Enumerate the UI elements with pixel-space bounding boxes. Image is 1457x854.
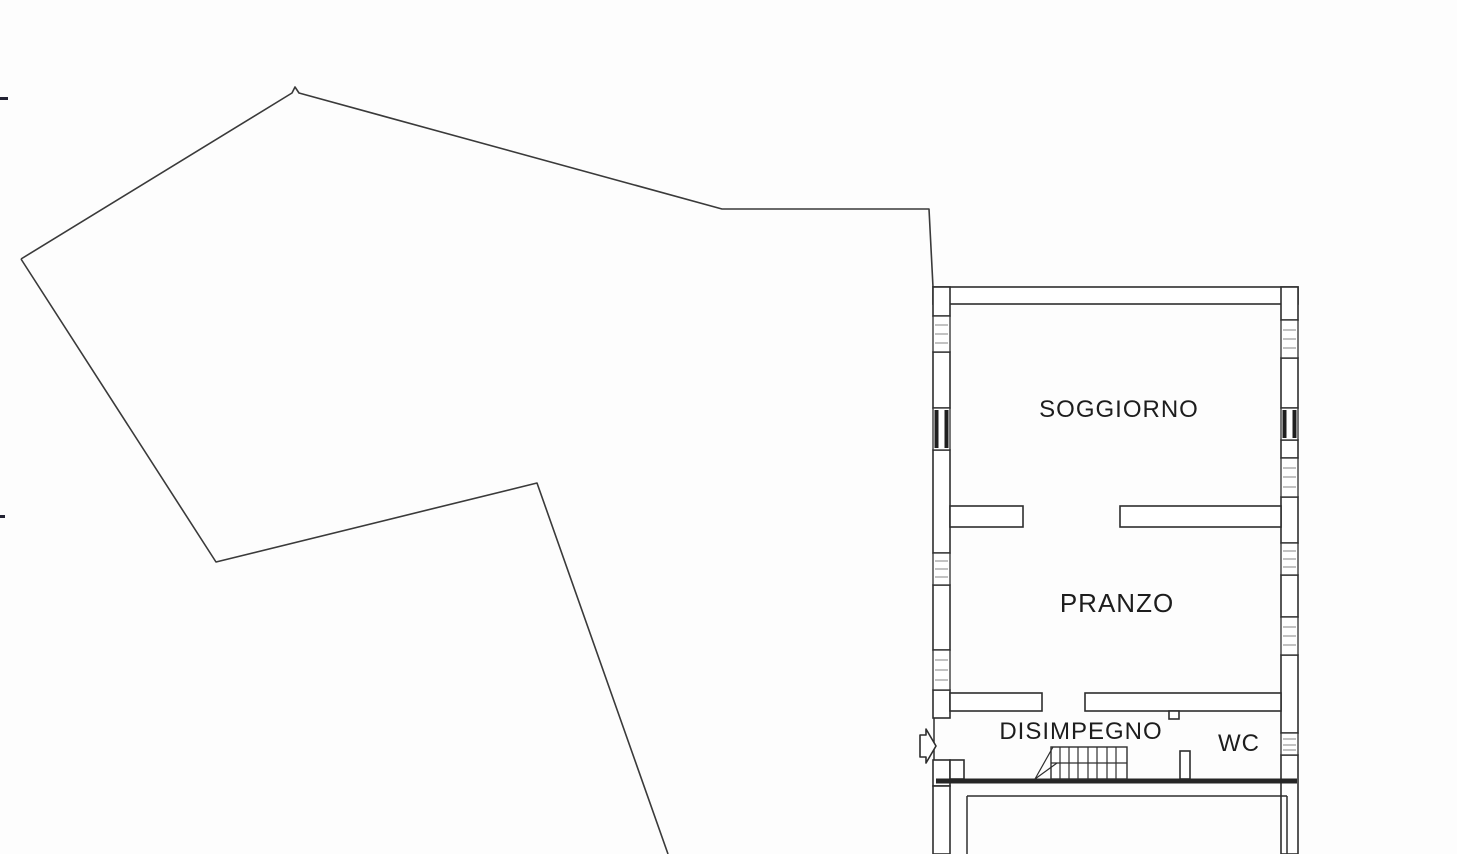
exterior-wall-right <box>1281 755 1298 854</box>
interior-wall-pranzo-disimpegno-right <box>1085 693 1281 711</box>
window-symbol <box>933 650 950 690</box>
exterior-wall-left <box>933 287 950 316</box>
exterior-wall-right <box>1281 575 1298 617</box>
exterior-wall-left <box>933 690 950 718</box>
window-symbol <box>1281 543 1298 575</box>
building-outline: SOGGIORNO PRANZO DISIMPEGNO WC <box>920 287 1298 854</box>
exterior-wall-right <box>1281 287 1298 320</box>
window-symbol <box>933 316 950 352</box>
exterior-wall-left <box>933 352 950 408</box>
room-label-disimpegno: DISIMPEGNO <box>999 718 1162 745</box>
window-symbol <box>933 553 950 585</box>
exterior-wall-right <box>1281 497 1298 543</box>
floor-plan-canvas: SOGGIORNO PRANZO DISIMPEGNO WC <box>0 0 1457 854</box>
exterior-wall-top <box>933 287 1298 304</box>
window-symbol <box>1281 320 1298 358</box>
terrace-boundary <box>21 87 933 854</box>
scan-mark <box>0 97 8 100</box>
wc-partition-wall <box>1180 751 1190 779</box>
terrace-boundary-line-upper <box>21 87 933 287</box>
interior-wall-soggiorno-pranzo-left <box>950 506 1023 527</box>
staircase-symbol <box>1035 747 1127 779</box>
lower-room-walls <box>967 796 1287 854</box>
interior-wall-soggiorno-pranzo-right <box>1120 506 1281 527</box>
room-label-pranzo: PRANZO <box>1060 588 1174 618</box>
exterior-wall-right <box>1281 440 1298 458</box>
exterior-wall-right <box>1281 358 1298 408</box>
entrance-door-jamb <box>950 760 964 779</box>
room-label-soggiorno: SOGGIORNO <box>1039 396 1199 423</box>
terrace-boundary-line-lower <box>21 259 668 854</box>
exterior-wall-left <box>933 585 950 650</box>
window-symbol <box>1281 733 1298 755</box>
window-symbol-dark <box>1281 408 1298 440</box>
exterior-wall-right <box>1281 655 1298 733</box>
scanned-floor-plan-page: SOGGIORNO PRANZO DISIMPEGNO WC <box>0 0 1457 854</box>
interior-wall-pranzo-disimpegno-left <box>950 693 1042 711</box>
exterior-wall-left <box>933 450 950 553</box>
exterior-wall-left <box>933 786 950 854</box>
window-symbol-dark <box>933 408 950 450</box>
wc-door-jamb-top <box>1169 711 1179 719</box>
room-label-wc: WC <box>1218 730 1260 757</box>
scan-mark <box>0 515 5 518</box>
window-symbol <box>1281 617 1298 655</box>
window-symbol <box>1281 458 1298 497</box>
